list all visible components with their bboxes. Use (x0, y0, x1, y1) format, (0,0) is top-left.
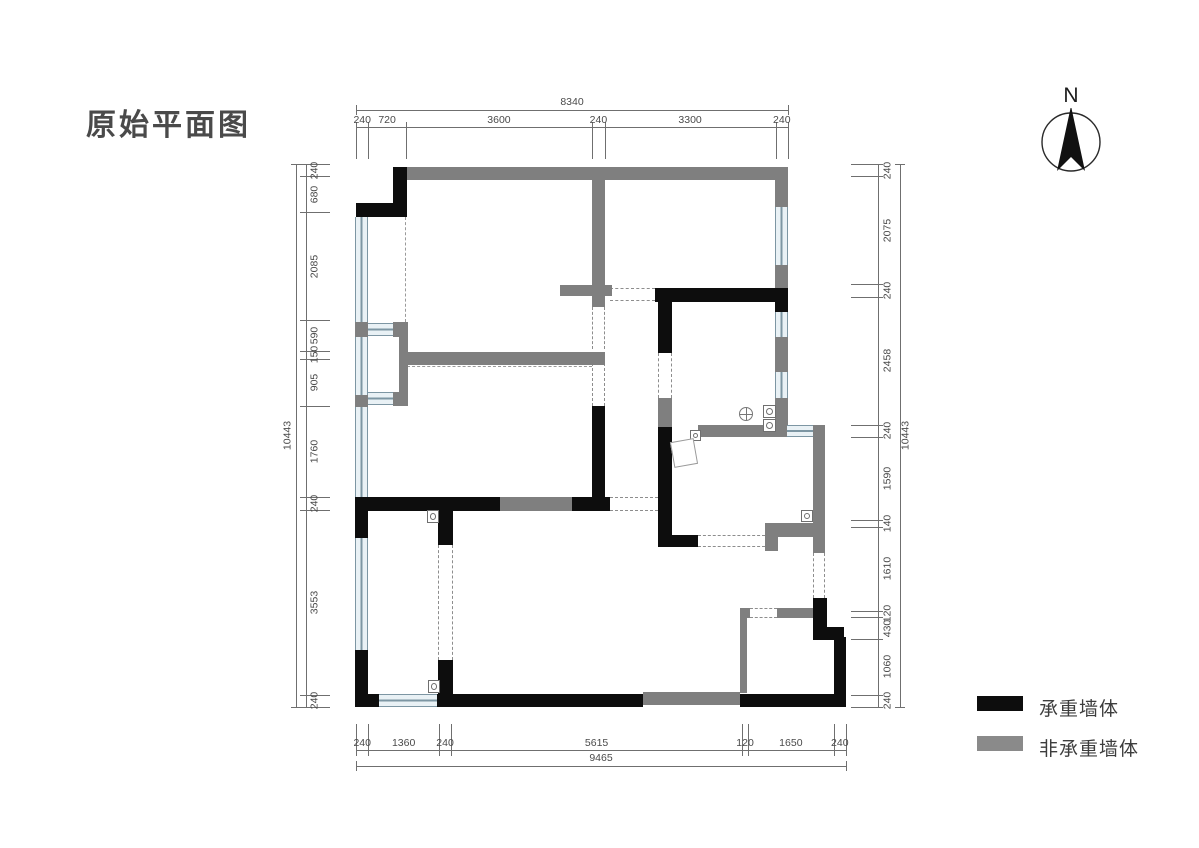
door-opening (658, 353, 672, 398)
wall-non-load-bearing (775, 337, 788, 372)
wall-load-bearing (356, 497, 500, 511)
wall-load-bearing (572, 497, 610, 511)
dimension-label: 1760 (310, 430, 321, 474)
wall-non-load-bearing (355, 395, 368, 407)
extension-line (851, 527, 883, 528)
window (355, 337, 368, 395)
dimension-tick (356, 761, 357, 771)
dimension-tick (895, 164, 905, 165)
floor-drain-symbol (739, 407, 753, 421)
wall-non-load-bearing (399, 337, 408, 392)
dimension-label: 2458 (883, 339, 894, 383)
dimension-tick (846, 761, 847, 771)
dimension-label: 140 (883, 501, 894, 545)
non-load-bearing-label: 非承重墙体 (1039, 734, 1139, 761)
wall-load-bearing (658, 301, 672, 353)
extension-line (605, 122, 606, 159)
dimension-label: 240 (310, 679, 321, 723)
door-opening (813, 553, 825, 598)
wall-non-load-bearing (777, 608, 813, 618)
wall-load-bearing (356, 203, 407, 217)
door-opening (592, 363, 605, 406)
wall-non-load-bearing (500, 497, 572, 511)
dimension-line (356, 110, 788, 111)
dimension-line (356, 750, 846, 751)
dimension-label: 240 (760, 115, 804, 126)
wall-non-load-bearing (407, 167, 775, 180)
wall-non-load-bearing (393, 392, 408, 406)
extension-line (406, 122, 407, 159)
dashed-line (407, 366, 592, 368)
north-label: N (1041, 84, 1101, 108)
extension-line (851, 164, 883, 165)
window (775, 312, 788, 337)
floor-plan-drawing: 原始平面图 8340240720360024033002409465240136… (0, 0, 1199, 848)
door-opening (592, 307, 605, 349)
extension-line (788, 122, 789, 159)
wall-non-load-bearing (813, 425, 825, 553)
dimension-line (356, 766, 846, 767)
dimension-label: 10443 (283, 414, 294, 458)
pipe-symbol (763, 405, 776, 418)
legend-item-load-bearing: 承重墙体 (977, 695, 1197, 713)
dimension-label: 240 (340, 738, 384, 749)
wall-non-load-bearing (740, 608, 750, 618)
door-opening (610, 497, 658, 511)
dimension-label: 3600 (477, 115, 521, 126)
window (355, 537, 368, 650)
dimension-line (356, 127, 788, 128)
north-arrow-icon (1030, 108, 1112, 180)
dimension-label: 240 (310, 482, 321, 526)
dimension-label: 240 (818, 738, 862, 749)
dimension-label: 1610 (883, 547, 894, 591)
dimension-label: 240 (883, 679, 894, 723)
window (368, 323, 393, 336)
wall-load-bearing (655, 288, 788, 302)
wall-non-load-bearing (643, 692, 740, 705)
dimension-label: 240 (576, 115, 620, 126)
door-opening (698, 535, 765, 547)
wall-load-bearing (356, 694, 379, 707)
extension-line (851, 297, 883, 298)
dimension-label: 1650 (769, 738, 813, 749)
wall-load-bearing (658, 535, 698, 547)
wall-non-load-bearing (403, 352, 605, 365)
dimension-label: 9465 (579, 753, 623, 764)
window (775, 207, 788, 265)
window (355, 407, 368, 497)
wall-non-load-bearing (765, 523, 813, 537)
extension-line (851, 611, 883, 612)
dimension-label: 2085 (310, 244, 321, 288)
extension-line (851, 639, 883, 640)
wall-load-bearing (438, 660, 453, 707)
window (378, 694, 437, 707)
dimension-label: 3553 (310, 580, 321, 624)
extension-line (851, 284, 883, 285)
window (355, 217, 368, 322)
dimension-label: 10443 (901, 414, 912, 458)
dimension-label: 240 (883, 409, 894, 453)
dimension-line (296, 164, 297, 707)
extension-line (592, 122, 593, 159)
dimension-label: 1360 (382, 738, 426, 749)
dimension-label: 240 (883, 269, 894, 313)
dimension-label: 240 (883, 148, 894, 192)
dimension-label: 5615 (575, 738, 619, 749)
door-opening (750, 608, 777, 618)
wall-load-bearing (834, 637, 846, 707)
extension-line (851, 425, 883, 426)
wall-non-load-bearing (765, 537, 778, 551)
wall-non-load-bearing (658, 398, 672, 427)
wall-load-bearing (437, 694, 643, 707)
pipe-symbol (428, 680, 440, 693)
wall-non-load-bearing (355, 322, 368, 337)
extension-line (776, 122, 777, 159)
dimension-label: 8340 (550, 97, 594, 108)
door-opening (610, 288, 655, 301)
dimension-label: 2075 (883, 208, 894, 252)
dimension-label: 3300 (668, 115, 712, 126)
dimension-line (306, 164, 307, 707)
wall-load-bearing (592, 406, 605, 497)
plan-layer: 8340240720360024033002409465240136024056… (0, 0, 1199, 848)
extension-line (300, 406, 330, 407)
extension-line (368, 122, 369, 159)
extension-line (851, 437, 883, 438)
dimension-label: 240 (423, 738, 467, 749)
window (368, 392, 393, 405)
extension-line (851, 695, 883, 696)
dashed-line (405, 217, 407, 322)
dimension-line (878, 164, 879, 707)
extension-line (851, 176, 883, 177)
dimension-tick (895, 707, 905, 708)
load-bearing-label: 承重墙体 (1039, 694, 1119, 721)
wall-non-load-bearing (393, 322, 408, 337)
dimension-label: 680 (310, 172, 321, 216)
non-load-bearing-swatch (977, 736, 1023, 751)
window (775, 372, 788, 398)
dimension-label: 720 (365, 115, 409, 126)
legend-item-non-load-bearing: 非承重墙体 (977, 735, 1197, 753)
wall-non-load-bearing (740, 618, 747, 693)
pipe-symbol (763, 419, 776, 432)
extension-line (851, 520, 883, 521)
pipe-symbol (427, 510, 439, 523)
door-opening (438, 545, 453, 660)
dimension-label: 1590 (883, 456, 894, 500)
dimension-label: 120 (723, 738, 767, 749)
fixture-outline (670, 438, 698, 468)
load-bearing-swatch (977, 696, 1023, 711)
pipe-symbol (801, 510, 813, 522)
dimension-label: 905 (310, 360, 321, 404)
extension-line (851, 707, 883, 708)
extension-line (851, 617, 883, 618)
wall-non-load-bearing (560, 285, 612, 296)
extension-line (356, 122, 357, 159)
window (787, 425, 813, 437)
wall-load-bearing (740, 694, 846, 707)
wall-load-bearing (775, 288, 788, 312)
